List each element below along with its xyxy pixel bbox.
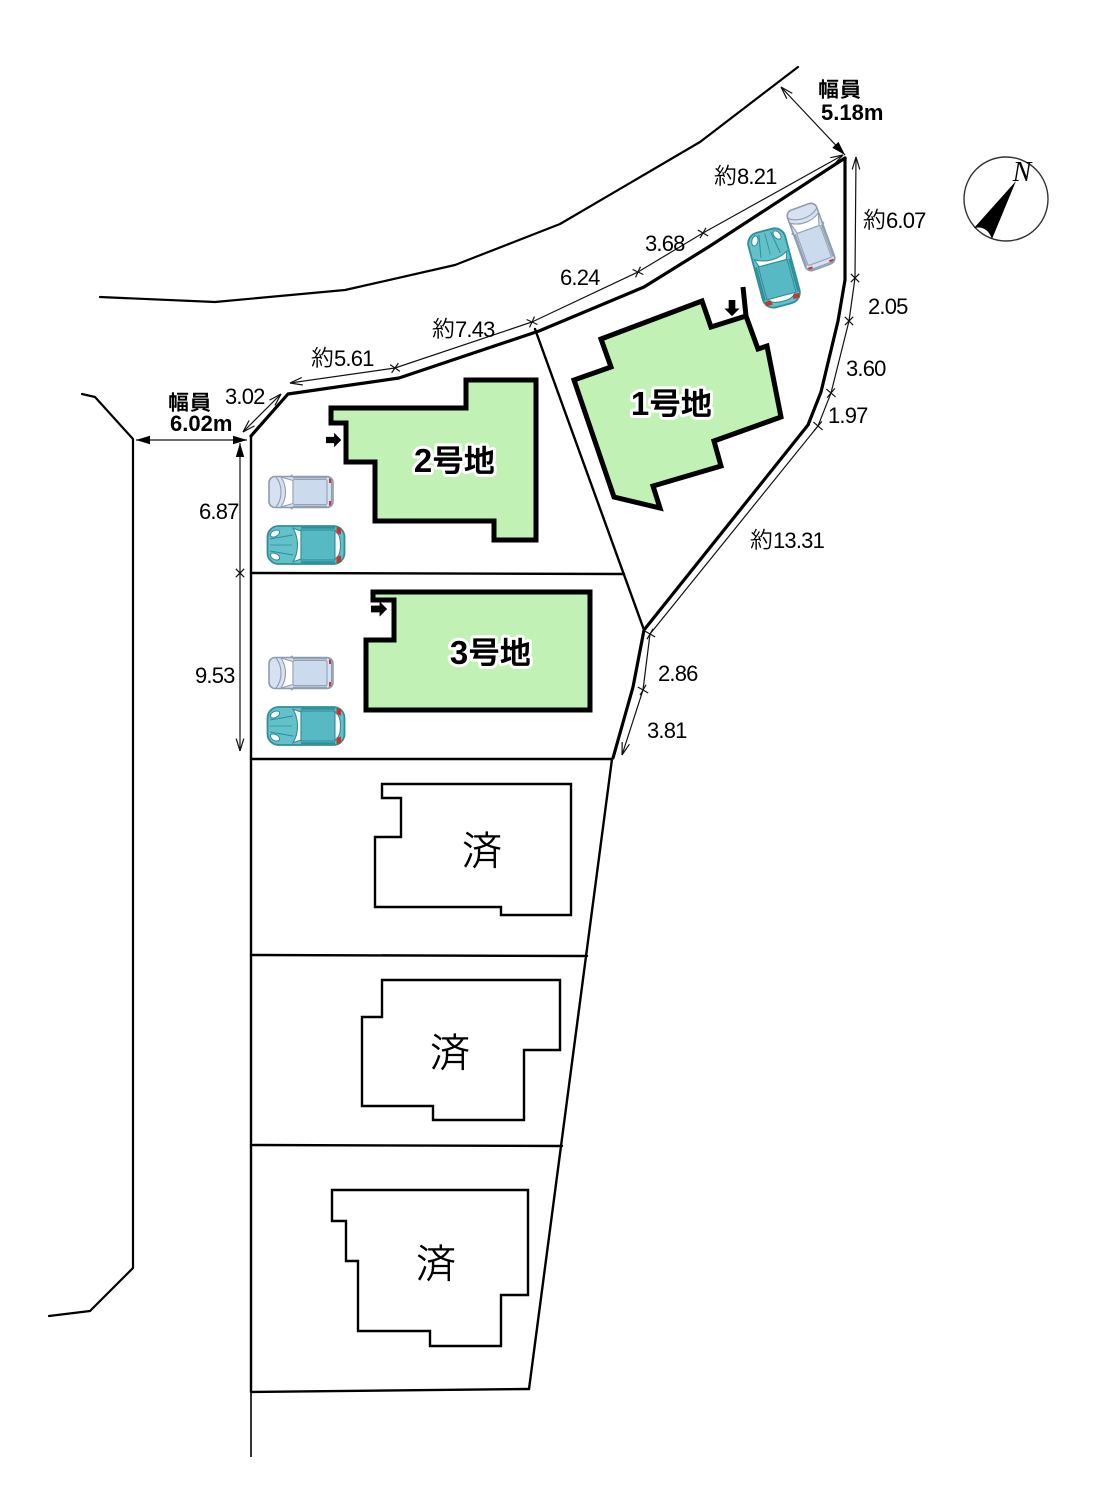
svg-text:8.21: 8.21 <box>737 164 777 189</box>
svg-text:6.07: 6.07 <box>886 208 926 233</box>
svg-text:1.97: 1.97 <box>828 403 868 428</box>
svg-text:6.24: 6.24 <box>560 265 600 290</box>
svg-text:2.86: 2.86 <box>658 661 698 686</box>
svg-text:3: 3 <box>450 634 468 671</box>
svg-text:2: 2 <box>414 442 432 479</box>
svg-text:7.43: 7.43 <box>455 317 495 342</box>
svg-text:3.02: 3.02 <box>225 384 265 409</box>
svg-text:9.53: 9.53 <box>195 663 235 688</box>
svg-text:2.05: 2.05 <box>868 294 908 319</box>
svg-text:5.18m: 5.18m <box>821 100 883 125</box>
svg-text:13.31: 13.31 <box>773 528 825 553</box>
svg-text:N: N <box>1012 157 1033 188</box>
svg-text:3.68: 3.68 <box>645 231 685 256</box>
svg-text:3.60: 3.60 <box>846 356 886 381</box>
svg-text:6.02m: 6.02m <box>170 411 232 436</box>
svg-text:1: 1 <box>631 385 649 422</box>
svg-text:6.87: 6.87 <box>199 499 239 524</box>
svg-text:3.81: 3.81 <box>647 718 687 743</box>
svg-text:5.61: 5.61 <box>334 346 374 371</box>
